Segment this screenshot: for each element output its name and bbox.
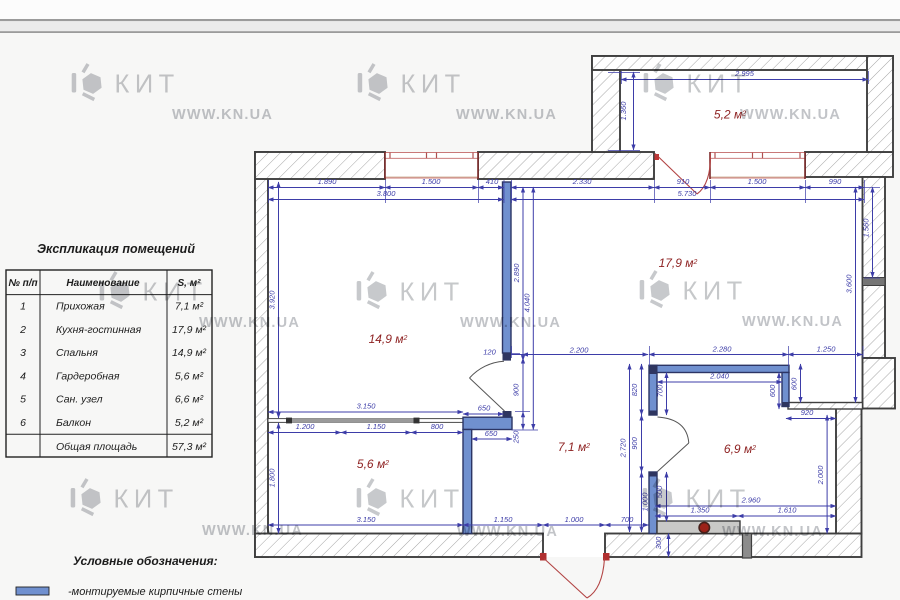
svg-text:700: 700 xyxy=(621,515,634,524)
svg-text:1: 1 xyxy=(20,301,26,313)
svg-text:2.890: 2.890 xyxy=(512,263,521,284)
svg-text:14,9 м²: 14,9 м² xyxy=(172,347,207,359)
svg-text:3.920: 3.920 xyxy=(268,290,277,310)
svg-text:14,9 м2: 14,9 м2 xyxy=(369,332,408,346)
svg-text:WWW.KN.UA: WWW.KN.UA xyxy=(457,524,558,540)
svg-text:5.730: 5.730 xyxy=(678,189,698,198)
svg-text:КИТ: КИТ xyxy=(400,486,465,514)
svg-text:600: 600 xyxy=(790,377,799,390)
svg-text:1.200: 1.200 xyxy=(296,422,316,431)
svg-text:4: 4 xyxy=(20,370,26,382)
svg-text:920: 920 xyxy=(801,408,814,417)
svg-text:650: 650 xyxy=(485,429,498,438)
svg-text:КИТ: КИТ xyxy=(686,486,751,514)
svg-text:1.800: 1.800 xyxy=(268,468,277,488)
svg-text:7,1 м2: 7,1 м2 xyxy=(558,440,590,454)
svg-text:WWW.KN.UA: WWW.KN.UA xyxy=(456,107,557,123)
svg-text:Балкон: Балкон xyxy=(56,417,91,429)
svg-text:1.560: 1.560 xyxy=(862,218,871,238)
svg-text:2.200: 2.200 xyxy=(569,346,590,355)
svg-text:4.040: 4.040 xyxy=(522,293,531,313)
svg-text:КИТ: КИТ xyxy=(683,278,748,306)
svg-text:3.150: 3.150 xyxy=(357,515,377,524)
svg-text:Прихожая: Прихожая xyxy=(56,301,105,313)
svg-text:WWW.KN.UA: WWW.KN.UA xyxy=(722,524,823,540)
svg-text:Гардеробная: Гардеробная xyxy=(56,370,120,382)
svg-text:900: 900 xyxy=(630,436,639,449)
svg-text:5: 5 xyxy=(20,394,26,406)
svg-text:-монтируемые кирпичные стены: -монтируемые кирпичные стены xyxy=(68,586,242,598)
svg-text:1.500: 1.500 xyxy=(422,177,442,186)
svg-text:5,6 м2: 5,6 м2 xyxy=(357,457,389,471)
svg-text:5,2 м²: 5,2 м² xyxy=(175,417,204,429)
svg-text:WWW.KN.UA: WWW.KN.UA xyxy=(460,315,561,331)
svg-text:2.040: 2.040 xyxy=(709,372,730,381)
svg-text:Экспликация помещений: Экспликация помещений xyxy=(37,242,195,256)
svg-text:6,9 м2: 6,9 м2 xyxy=(724,442,756,456)
svg-text:WWW.KN.UA: WWW.KN.UA xyxy=(742,314,843,330)
svg-text:1.610: 1.610 xyxy=(778,506,798,515)
svg-text:250: 250 xyxy=(512,430,521,444)
svg-text:2.720: 2.720 xyxy=(619,438,628,459)
svg-text:2.000: 2.000 xyxy=(816,465,825,486)
svg-text:1.250: 1.250 xyxy=(817,345,837,354)
svg-text:2.280: 2.280 xyxy=(712,345,733,354)
svg-text:5,6 м²: 5,6 м² xyxy=(175,370,204,382)
svg-text:1.500: 1.500 xyxy=(748,177,768,186)
svg-text:WWW.KN.UA: WWW.KN.UA xyxy=(172,107,273,123)
svg-text:КИТ: КИТ xyxy=(115,71,180,99)
svg-text:2.330: 2.330 xyxy=(572,177,593,186)
svg-text:910: 910 xyxy=(677,177,690,186)
svg-text:6,6 м²: 6,6 м² xyxy=(175,394,204,406)
svg-text:Сан. узел: Сан. узел xyxy=(56,394,103,406)
svg-text:Спальня: Спальня xyxy=(56,347,98,359)
svg-text:WWW.KN.UA: WWW.KN.UA xyxy=(740,107,841,123)
svg-text:1.150: 1.150 xyxy=(494,515,514,524)
svg-text:600: 600 xyxy=(768,384,777,397)
svg-text:410: 410 xyxy=(486,177,499,186)
svg-text:WWW.KN.UA: WWW.KN.UA xyxy=(199,315,300,331)
svg-text:1.360: 1.360 xyxy=(619,101,628,121)
svg-text:3.150: 3.150 xyxy=(357,402,377,411)
svg-text:КИТ: КИТ xyxy=(114,486,179,514)
svg-text:650: 650 xyxy=(478,404,491,413)
svg-text:700: 700 xyxy=(656,384,665,397)
svg-text:Условные обозначения:: Условные обозначения: xyxy=(73,554,218,568)
svg-text:Общая площадь: Общая площадь xyxy=(56,441,137,453)
svg-text:3.800: 3.800 xyxy=(377,189,397,198)
svg-text:Кухня-гостинная: Кухня-гостинная xyxy=(56,324,142,336)
svg-text:КИТ: КИТ xyxy=(143,279,208,307)
svg-text:1.000: 1.000 xyxy=(565,515,585,524)
svg-text:1.890: 1.890 xyxy=(318,177,338,186)
svg-text:КИТ: КИТ xyxy=(687,71,752,99)
svg-text:1.150: 1.150 xyxy=(367,422,387,431)
svg-text:800: 800 xyxy=(431,422,444,431)
svg-text:WWW.KN.UA: WWW.KN.UA xyxy=(202,523,303,539)
svg-text:300: 300 xyxy=(654,536,663,549)
svg-text:900: 900 xyxy=(512,383,521,396)
svg-text:820: 820 xyxy=(630,383,639,396)
svg-text:3: 3 xyxy=(20,347,26,359)
svg-text:2: 2 xyxy=(19,324,26,336)
svg-text:17,9 м2: 17,9 м2 xyxy=(659,256,698,270)
svg-text:6: 6 xyxy=(20,417,26,429)
svg-text:КИТ: КИТ xyxy=(400,279,465,307)
svg-text:КИТ: КИТ xyxy=(401,71,466,99)
svg-text:990: 990 xyxy=(829,177,842,186)
svg-text:3.600: 3.600 xyxy=(845,274,854,294)
svg-text:№ п/п: № п/п xyxy=(8,278,37,289)
svg-text:120: 120 xyxy=(483,348,496,357)
svg-text:57,3 м²: 57,3 м² xyxy=(172,441,207,453)
